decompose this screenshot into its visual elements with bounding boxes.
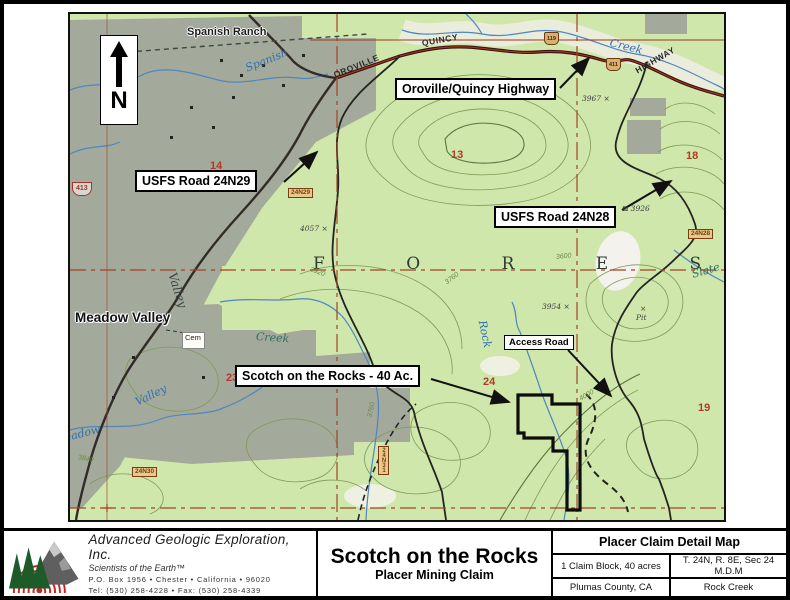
detail-cell: Plumas County, CA <box>553 579 671 596</box>
elevation-label: × <box>640 304 646 313</box>
place-label: Spanish Ranch <box>187 26 266 38</box>
title-center: Scotch on the Rocks Placer Mining Claim <box>316 531 553 596</box>
road-name-label: QUINCY <box>421 32 459 48</box>
cemetery-label: Cem <box>182 332 205 349</box>
document-subtitle: Placer Mining Claim <box>375 568 494 583</box>
document-title: Scotch on the Rocks <box>331 545 539 568</box>
company-logo-icon <box>8 535 81 593</box>
road-shield: 119 <box>544 32 559 45</box>
north-arrow: N <box>100 35 138 125</box>
road-name-label: OROVILLE <box>332 52 380 79</box>
elevation-label: Pit <box>636 313 646 322</box>
company-tagline: Scientists of the Earth™ <box>89 563 313 573</box>
map-callout: Scotch on the Rocks - 40 Ac. <box>235 365 420 387</box>
section-number: 24 <box>483 376 495 388</box>
title-block: Advanced Geologic Exploration, Inc. Scie… <box>4 528 786 596</box>
map-callout: Access Road <box>504 335 574 350</box>
water-label: Valley <box>133 382 169 408</box>
elevation-label: 4057 × <box>300 224 328 233</box>
map-callout: USFS Road 24N28 <box>494 206 616 228</box>
detail-cell: 1 Claim Block, 40 acres <box>553 555 671 577</box>
elevation-label: 3954 × <box>542 302 570 311</box>
company-address: P.O. Box 1956 • Chester • California • 9… <box>89 575 313 584</box>
map-margin: Spanish RanchMeadow ValleyQUINCYOROVILLE… <box>4 4 786 528</box>
detail-row: Plumas County, CARock Creek <box>553 579 786 596</box>
page: Spanish RanchMeadow ValleyQUINCYOROVILLE… <box>0 0 790 600</box>
north-label: N <box>110 89 127 113</box>
forest-label: F O R E S T <box>313 254 726 274</box>
map-label-layer: Spanish RanchMeadow ValleyQUINCYOROVILLE… <box>70 14 724 520</box>
road-shield: 24N30 <box>132 467 157 477</box>
elevation-label: 3967 × <box>582 94 610 103</box>
elevation-label: ⊠ 3926 <box>622 204 650 213</box>
water-label: Meadow <box>68 423 102 447</box>
company-phone: Tel: (530) 258-4228 • Fax: (530) 258-433… <box>89 586 313 595</box>
company-name: Advanced Geologic Exploration, Inc. <box>89 532 313 562</box>
road-shield: 413 <box>72 182 92 196</box>
detail-cell: Rock Creek <box>671 579 786 596</box>
section-number: 18 <box>686 150 698 162</box>
water-label: Valley <box>165 271 190 310</box>
road-shield: 411 <box>606 58 621 71</box>
section-number: 13 <box>451 149 463 161</box>
water-label: Rock <box>476 319 494 349</box>
contour-label: 3840 <box>77 454 94 464</box>
detail-table: Placer Claim Detail Map 1 Claim Block, 4… <box>553 531 786 596</box>
road-shield: 24N28 <box>688 229 713 239</box>
north-arrow-icon <box>109 41 129 87</box>
map-callout: USFS Road 24N29 <box>135 170 257 192</box>
map-callout: Oroville/Quincy Highway <box>395 78 556 100</box>
detail-cell: T. 24N, R. 8E, Sec 24 M.D.M <box>671 555 786 577</box>
section-number: 19 <box>698 402 710 414</box>
detail-row: 1 Claim Block, 40 acresT. 24N, R. 8E, Se… <box>553 555 786 579</box>
detail-table-header: Placer Claim Detail Map <box>553 531 786 555</box>
water-label: Creek <box>256 330 290 345</box>
road-shield: 24N29 <box>288 188 313 198</box>
contour-label: 4000 <box>578 389 595 403</box>
company-block: Advanced Geologic Exploration, Inc. Scie… <box>4 531 316 596</box>
contour-label: 3760 <box>367 402 377 419</box>
road-shield: 24N31 <box>378 446 389 475</box>
water-label: Creek <box>608 36 644 57</box>
place-label: Meadow Valley <box>75 310 170 325</box>
map: Spanish RanchMeadow ValleyQUINCYOROVILLE… <box>68 12 726 522</box>
water-label: Spanish <box>244 46 290 75</box>
